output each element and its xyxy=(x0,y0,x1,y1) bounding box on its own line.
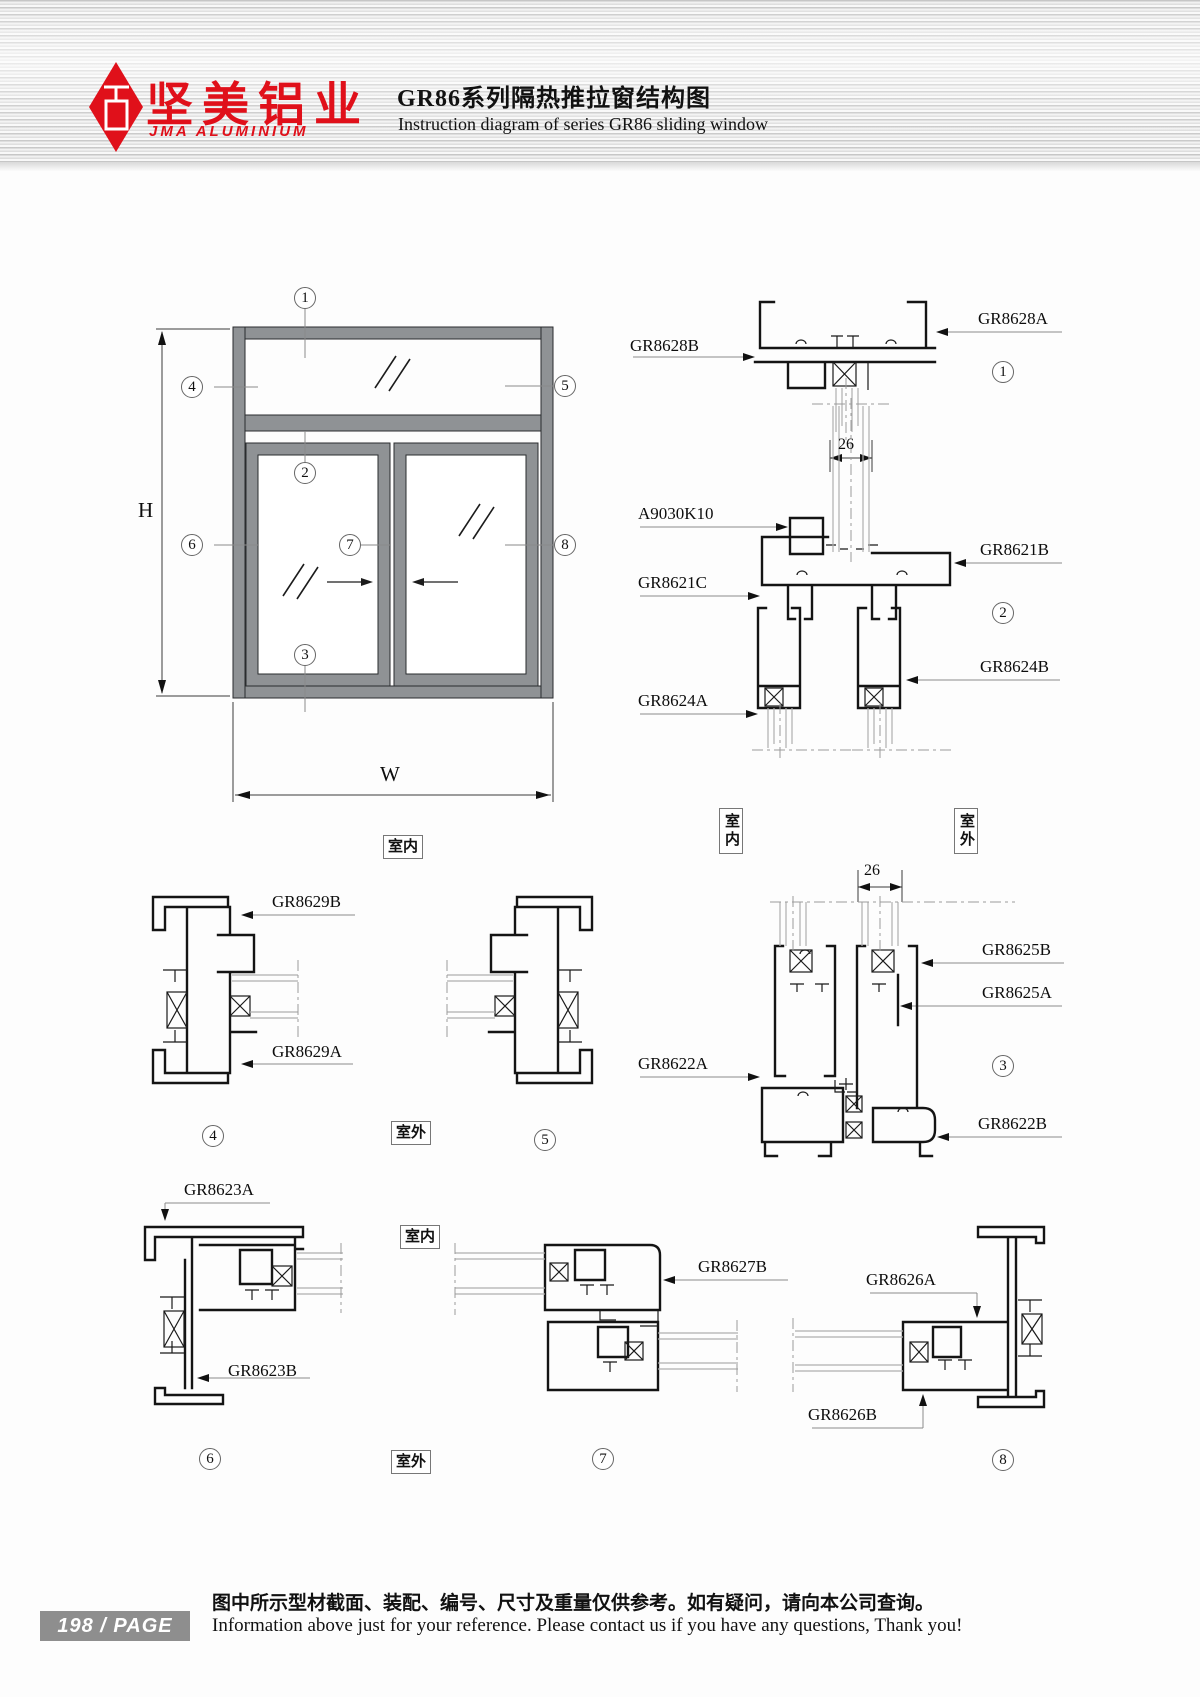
s6-label-gr8623a: GR8623A xyxy=(184,1180,254,1200)
elevation-callout-2: 2 xyxy=(294,462,316,484)
s3-label-gr8625a: GR8625A xyxy=(982,983,1052,1003)
section-8-profile xyxy=(903,1227,1044,1407)
elevation-callout-8: 8 xyxy=(554,534,576,556)
s2-label-gr8624a: GR8624A xyxy=(638,691,708,711)
elevation-callout-1: 1 xyxy=(294,287,316,309)
s2-label-gr8621c: GR8621C xyxy=(638,573,707,593)
s8-label-gr8626a: GR8626A xyxy=(866,1270,936,1290)
section-4-profile xyxy=(153,897,256,1083)
s7-indoor-label: 室内 xyxy=(400,1225,440,1249)
section-5-profile xyxy=(489,897,592,1083)
elevation-callout-4: 4 xyxy=(181,376,203,398)
s3-label-gr8625b: GR8625B xyxy=(982,940,1051,960)
s6-label-gr8623b: GR8623B xyxy=(228,1361,297,1381)
s2-number: 2 xyxy=(992,602,1014,624)
elevation-callout-3: 3 xyxy=(294,644,316,666)
elevation-height-dim: H xyxy=(138,498,153,523)
s2-outdoor-label: 室外 xyxy=(954,808,978,854)
elevation-sash-glass xyxy=(258,455,526,674)
s3-label-gr8622b: GR8622B xyxy=(978,1114,1047,1134)
s7-outdoor-label: 室外 xyxy=(391,1450,431,1474)
catalog-page: 坚美铝业 JMA ALUMINIUM GR86系列隔热推拉窗结构图 Instru… xyxy=(0,0,1200,1697)
s8-number: 8 xyxy=(992,1449,1014,1471)
elevation-callout-5: 5 xyxy=(554,375,576,397)
s2-label-a9030k10: A9030K10 xyxy=(638,504,714,524)
s4-label-gr8629a: GR8629A xyxy=(272,1042,342,1062)
s4-number: 4 xyxy=(202,1125,224,1147)
footer-note-chinese: 图中所示型材截面、装配、编号、尺寸及重量仅供参考。如有疑问，请向本公司查询。 xyxy=(212,1588,934,1615)
elevation-width-dim: W xyxy=(380,762,400,787)
elevation-callout-7: 7 xyxy=(339,534,361,556)
s7-label-gr8627b: GR8627B xyxy=(698,1257,767,1277)
s2-label-gr8621b: GR8621B xyxy=(980,540,1049,560)
s3-dim-26: 26 xyxy=(864,862,880,880)
elevation-indoor-label: 室内 xyxy=(383,835,423,859)
technical-drawing xyxy=(0,0,1200,1697)
s3-number: 3 xyxy=(992,1055,1014,1077)
s2-indoor-label: 室内 xyxy=(719,808,743,854)
s6-number: 6 xyxy=(199,1448,221,1470)
s8-label-gr8626b: GR8626B xyxy=(808,1405,877,1425)
s2-label-gr8624b: GR8624B xyxy=(980,657,1049,677)
elevation-callout-6: 6 xyxy=(181,534,203,556)
s3-label-gr8622a: GR8622A xyxy=(638,1054,708,1074)
s4-label-gr8629b: GR8629B xyxy=(272,892,341,912)
s7-number: 7 xyxy=(592,1448,614,1470)
s5-number: 5 xyxy=(534,1129,556,1151)
footer-note-english: Information above just for your referenc… xyxy=(212,1615,962,1637)
s1-label-gr8628b: GR8628B xyxy=(630,336,699,356)
s1-number: 1 xyxy=(992,361,1014,383)
s2-dim-26: 26 xyxy=(838,436,854,454)
section-7-profile xyxy=(545,1245,660,1390)
page-number-badge: 198 / PAGE xyxy=(40,1611,190,1641)
s4-s5-outdoor-label: 室外 xyxy=(391,1121,431,1145)
s1-label-gr8628a: GR8628A xyxy=(978,309,1048,329)
